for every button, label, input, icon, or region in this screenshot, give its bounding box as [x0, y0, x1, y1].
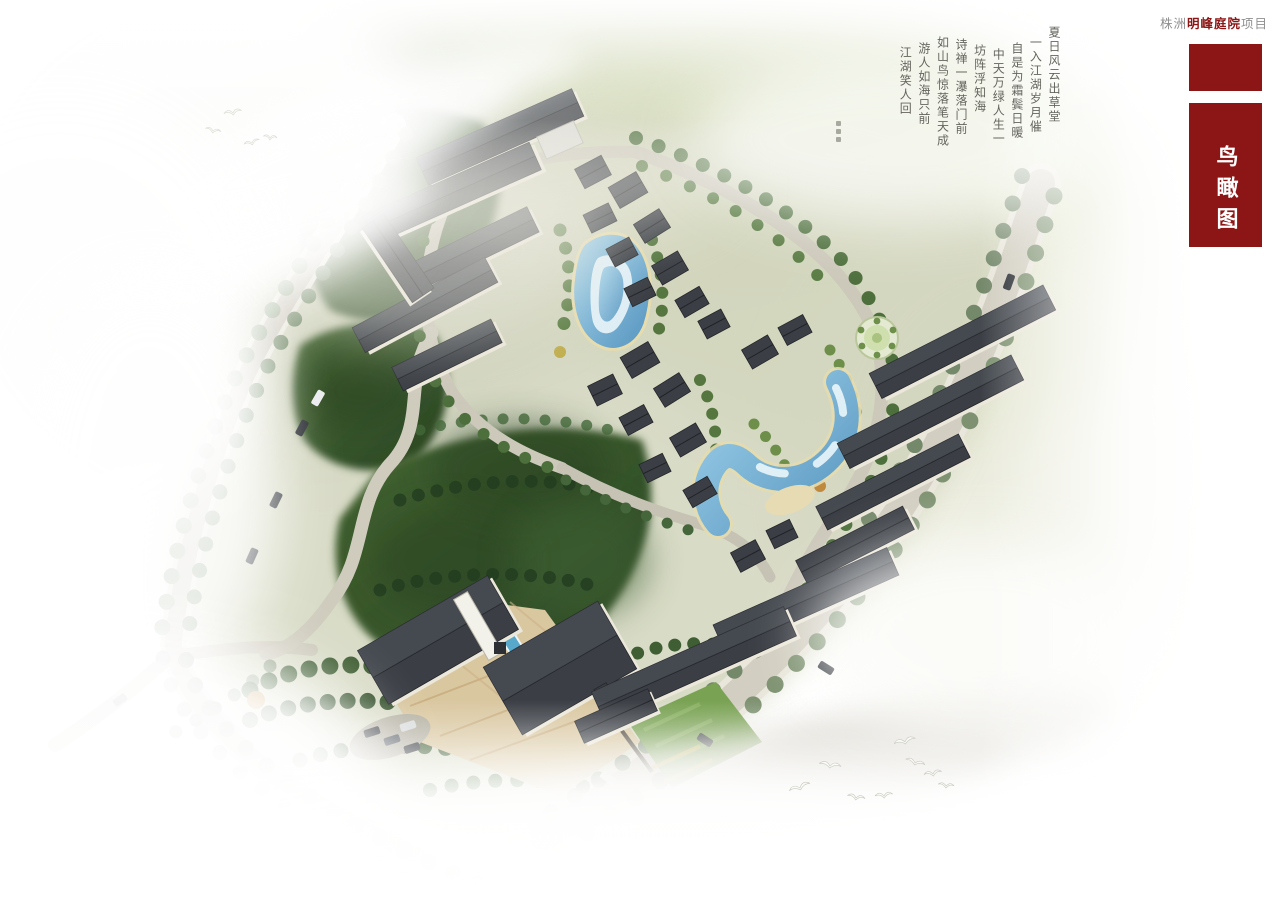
project-title-brand: 明峰庭院 — [1187, 17, 1241, 31]
presentation-board: 夏日风云出草堂 一入江湖岁月催 自是为霜鬓日暖 中天万绿人生一 坊阵浮知海 诗禅… — [0, 0, 1280, 906]
calligraphy-signature — [836, 118, 844, 144]
calligraphy-column: 诗禅一瀑落门前 — [954, 38, 967, 174]
calligraphy-column: 如山鸟惊落笔天成 — [936, 36, 949, 174]
calligraphy-column: 江湖笑人回 — [899, 46, 912, 174]
calligraphy-column: 游人如海只前 — [917, 42, 930, 174]
title-block-rectangle — [1189, 44, 1262, 91]
project-title: 株洲明峰庭院项目 — [1160, 13, 1268, 32]
project-title-suffix: 项目 — [1241, 17, 1268, 31]
calligraphy-column: 中天万绿人生一 — [992, 48, 1005, 174]
tower — [494, 642, 506, 654]
calligraphy-column: 坊阵浮知海 — [973, 44, 986, 174]
project-title-location: 株洲 — [1160, 17, 1187, 31]
view-label: 鸟瞰图 — [1215, 145, 1237, 247]
calligraphy-column: 夏日风云出草堂 — [1047, 26, 1060, 174]
calligraphy-column: 一入江湖岁月催 — [1029, 36, 1042, 174]
aerial-rendering — [0, 0, 1280, 906]
calligraphy-column: 自是为霜鬓日暖 — [1010, 42, 1023, 174]
circular-garden — [856, 317, 898, 359]
calligraphy-inscription: 夏日风云出草堂 一入江湖岁月催 自是为霜鬓日暖 中天万绿人生一 坊阵浮知海 诗禅… — [848, 14, 1060, 174]
view-label-bar: 鸟瞰图 — [1189, 103, 1262, 247]
